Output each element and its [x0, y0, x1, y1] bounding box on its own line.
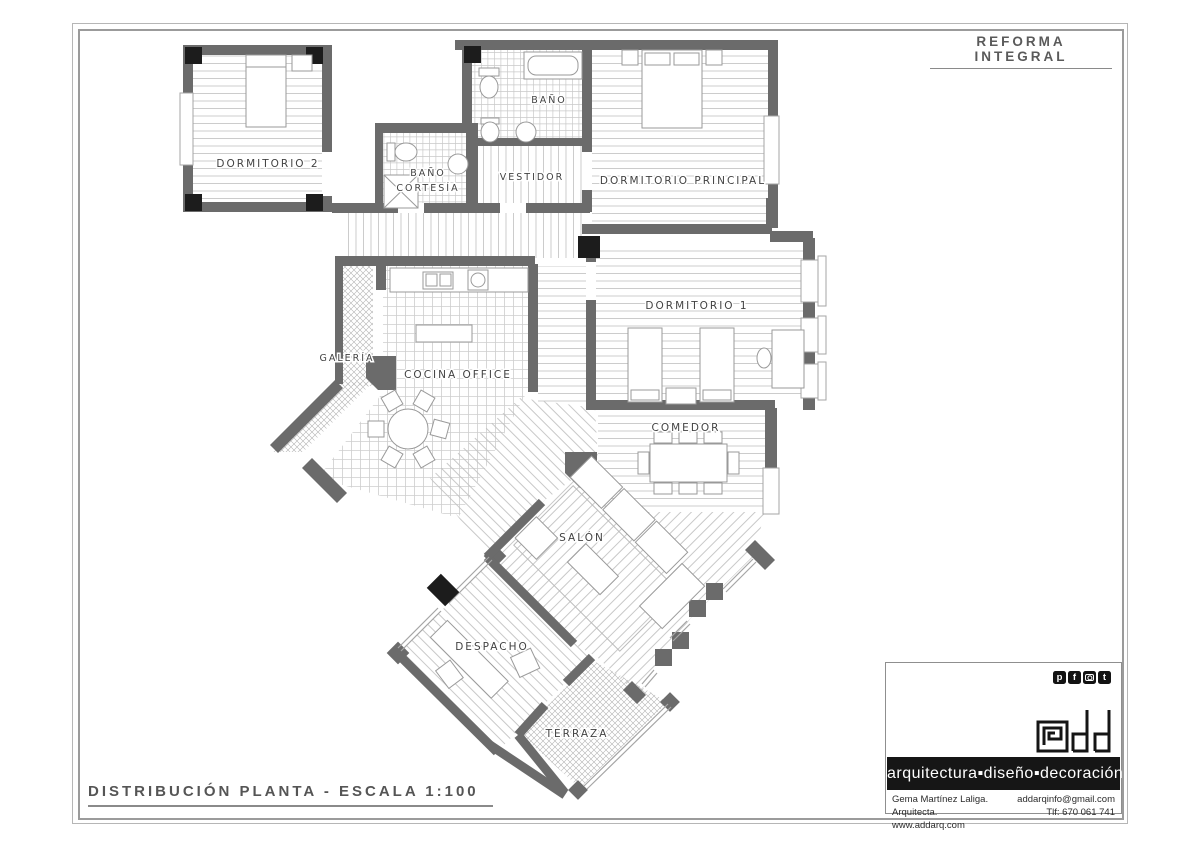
architect-name: Gema Martínez Laliga. Arquitecta. — [892, 794, 1017, 820]
room-label-salon: SALÓN — [559, 531, 605, 544]
instagram-icon — [1083, 671, 1096, 684]
room-label-terraza: TERRAZA — [545, 728, 609, 740]
website: www.addarq.com — [892, 820, 1017, 833]
drawing-caption: DISTRIBUCIÓN PLANTA - ESCALA 1:100 — [88, 783, 493, 807]
window-sill — [818, 362, 826, 400]
room-label-dormitorio-principal: DORMITORIO PRINCIPAL — [600, 175, 766, 187]
column — [306, 194, 323, 211]
room-label-galeria: GALERÍA — [319, 352, 374, 364]
window-sill — [818, 316, 826, 354]
column — [185, 194, 202, 211]
room-label-comedor: COMEDOR — [652, 422, 721, 434]
add-logo — [1035, 707, 1113, 755]
hall-floor — [345, 213, 585, 258]
room-label-bano-cortesia-1: BAÑO — [410, 168, 446, 179]
column — [185, 47, 202, 64]
window — [764, 116, 779, 184]
corridor-floor — [538, 266, 586, 406]
room-label-despacho: DESPACHO — [455, 641, 529, 653]
contact-right: addarqinfo@gmail.com Tlf: 670 061 741 — [1017, 794, 1115, 832]
room-label-bano-cortesia-2: CORTESÍA — [396, 182, 459, 194]
room-label-dormitorio-1: DORMITORIO 1 — [645, 300, 748, 312]
room-label-bano: BAÑO — [531, 95, 567, 106]
column — [464, 46, 481, 63]
window — [763, 468, 779, 514]
pinterest-icon: p — [1053, 671, 1066, 684]
contact-left: Gema Martínez Laliga. Arquitecta. www.ad… — [892, 794, 1017, 832]
social-icons: p f t — [1053, 671, 1111, 684]
phone: Tlf: 670 061 741 — [1017, 807, 1115, 820]
contact-info: Gema Martínez Laliga. Arquitecta. www.ad… — [892, 794, 1115, 832]
twitter-icon: t — [1098, 671, 1111, 684]
room-label-dormitorio-2: DORMITORIO 2 — [216, 158, 319, 170]
drawing-title: REFORMA INTEGRAL — [930, 34, 1112, 69]
email: addarqinfo@gmail.com — [1017, 794, 1115, 807]
room-label-cocina: COCINA OFFICE — [404, 369, 512, 381]
column — [578, 236, 600, 258]
window-sill — [818, 256, 826, 306]
brand-tagline: arquitectura▪diseño▪decoración — [887, 757, 1120, 790]
title-block: p f t arquitectura▪diseño▪decoración Gem… — [885, 662, 1122, 814]
room-label-vestidor: VESTIDOR — [500, 172, 565, 183]
facebook-icon: f — [1068, 671, 1081, 684]
window — [180, 93, 193, 165]
window — [801, 260, 818, 302]
